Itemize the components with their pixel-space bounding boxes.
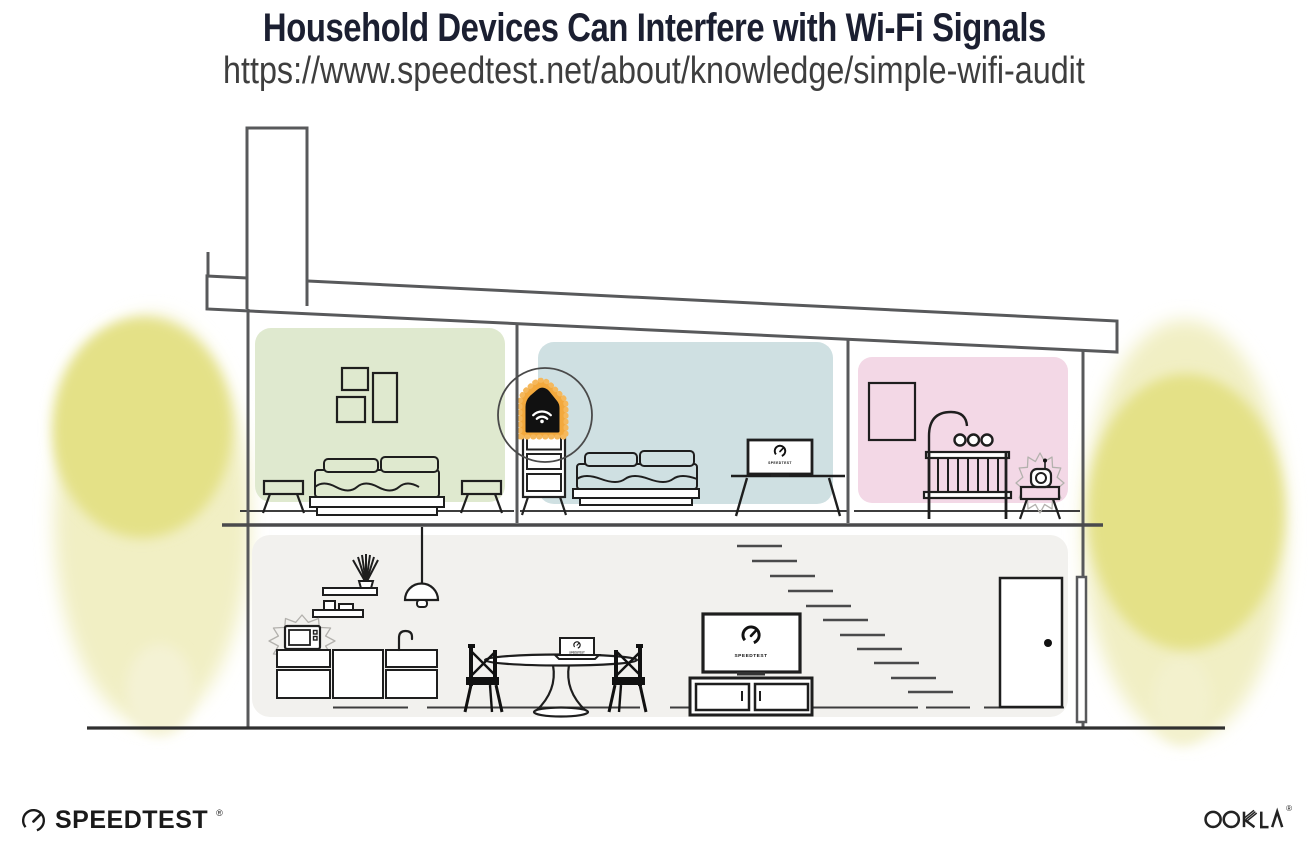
ookla-logo: ® OOKLA [1204, 806, 1292, 831]
door-knob [1044, 639, 1052, 647]
ookla-reg-mark: ® [1286, 804, 1292, 813]
wifi-router-area [520, 380, 566, 515]
house-cross-section-illustration: SPEEDTEST [0, 0, 1308, 861]
bed [573, 451, 699, 505]
ookla-wordmark-icon [1204, 806, 1284, 831]
speedtest-reg-mark: ® [216, 808, 223, 818]
left-tree [40, 308, 250, 736]
laptop-icon: SPEEDTEST [555, 638, 599, 659]
speedtest-logo: SPEEDTEST ® [20, 806, 223, 835]
front-door [1000, 578, 1062, 707]
speedtest-gauge-icon [20, 807, 47, 834]
bedroom-tv: SPEEDTEST [748, 440, 812, 477]
living-room-tv: SPEEDTEST [703, 614, 800, 676]
speedtest-wordmark: SPEEDTEST [55, 806, 208, 835]
microwave-icon [285, 626, 320, 649]
laptop-screen-text: SPEEDTEST [569, 651, 585, 655]
media-console [690, 678, 812, 715]
bed [310, 457, 444, 515]
downspout [1077, 577, 1086, 722]
chimney [247, 128, 307, 309]
tv-screen-text: SPEEDTEST [734, 653, 767, 659]
bedroom-tv-screen-text: SPEEDTEST [768, 461, 792, 465]
infographic-page: Household Devices Can Interfere with Wi-… [0, 0, 1308, 861]
right-tree [1083, 320, 1287, 744]
